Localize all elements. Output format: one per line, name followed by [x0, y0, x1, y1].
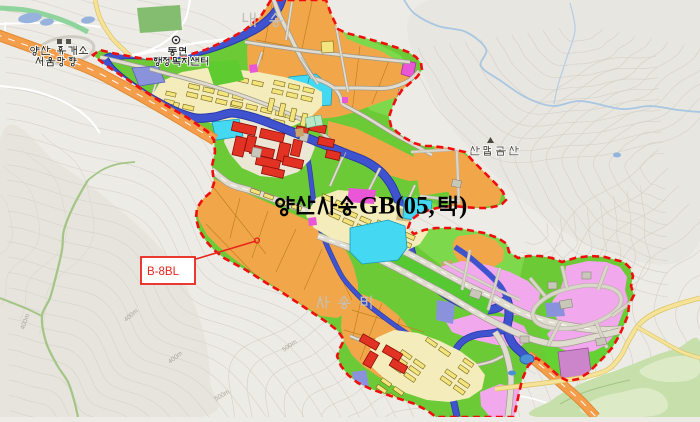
svg-text:B-8BL: B-8BL — [147, 266, 180, 278]
svg-text:GB(05,: GB(05, — [359, 193, 435, 220]
svg-text:): ) — [459, 193, 467, 220]
